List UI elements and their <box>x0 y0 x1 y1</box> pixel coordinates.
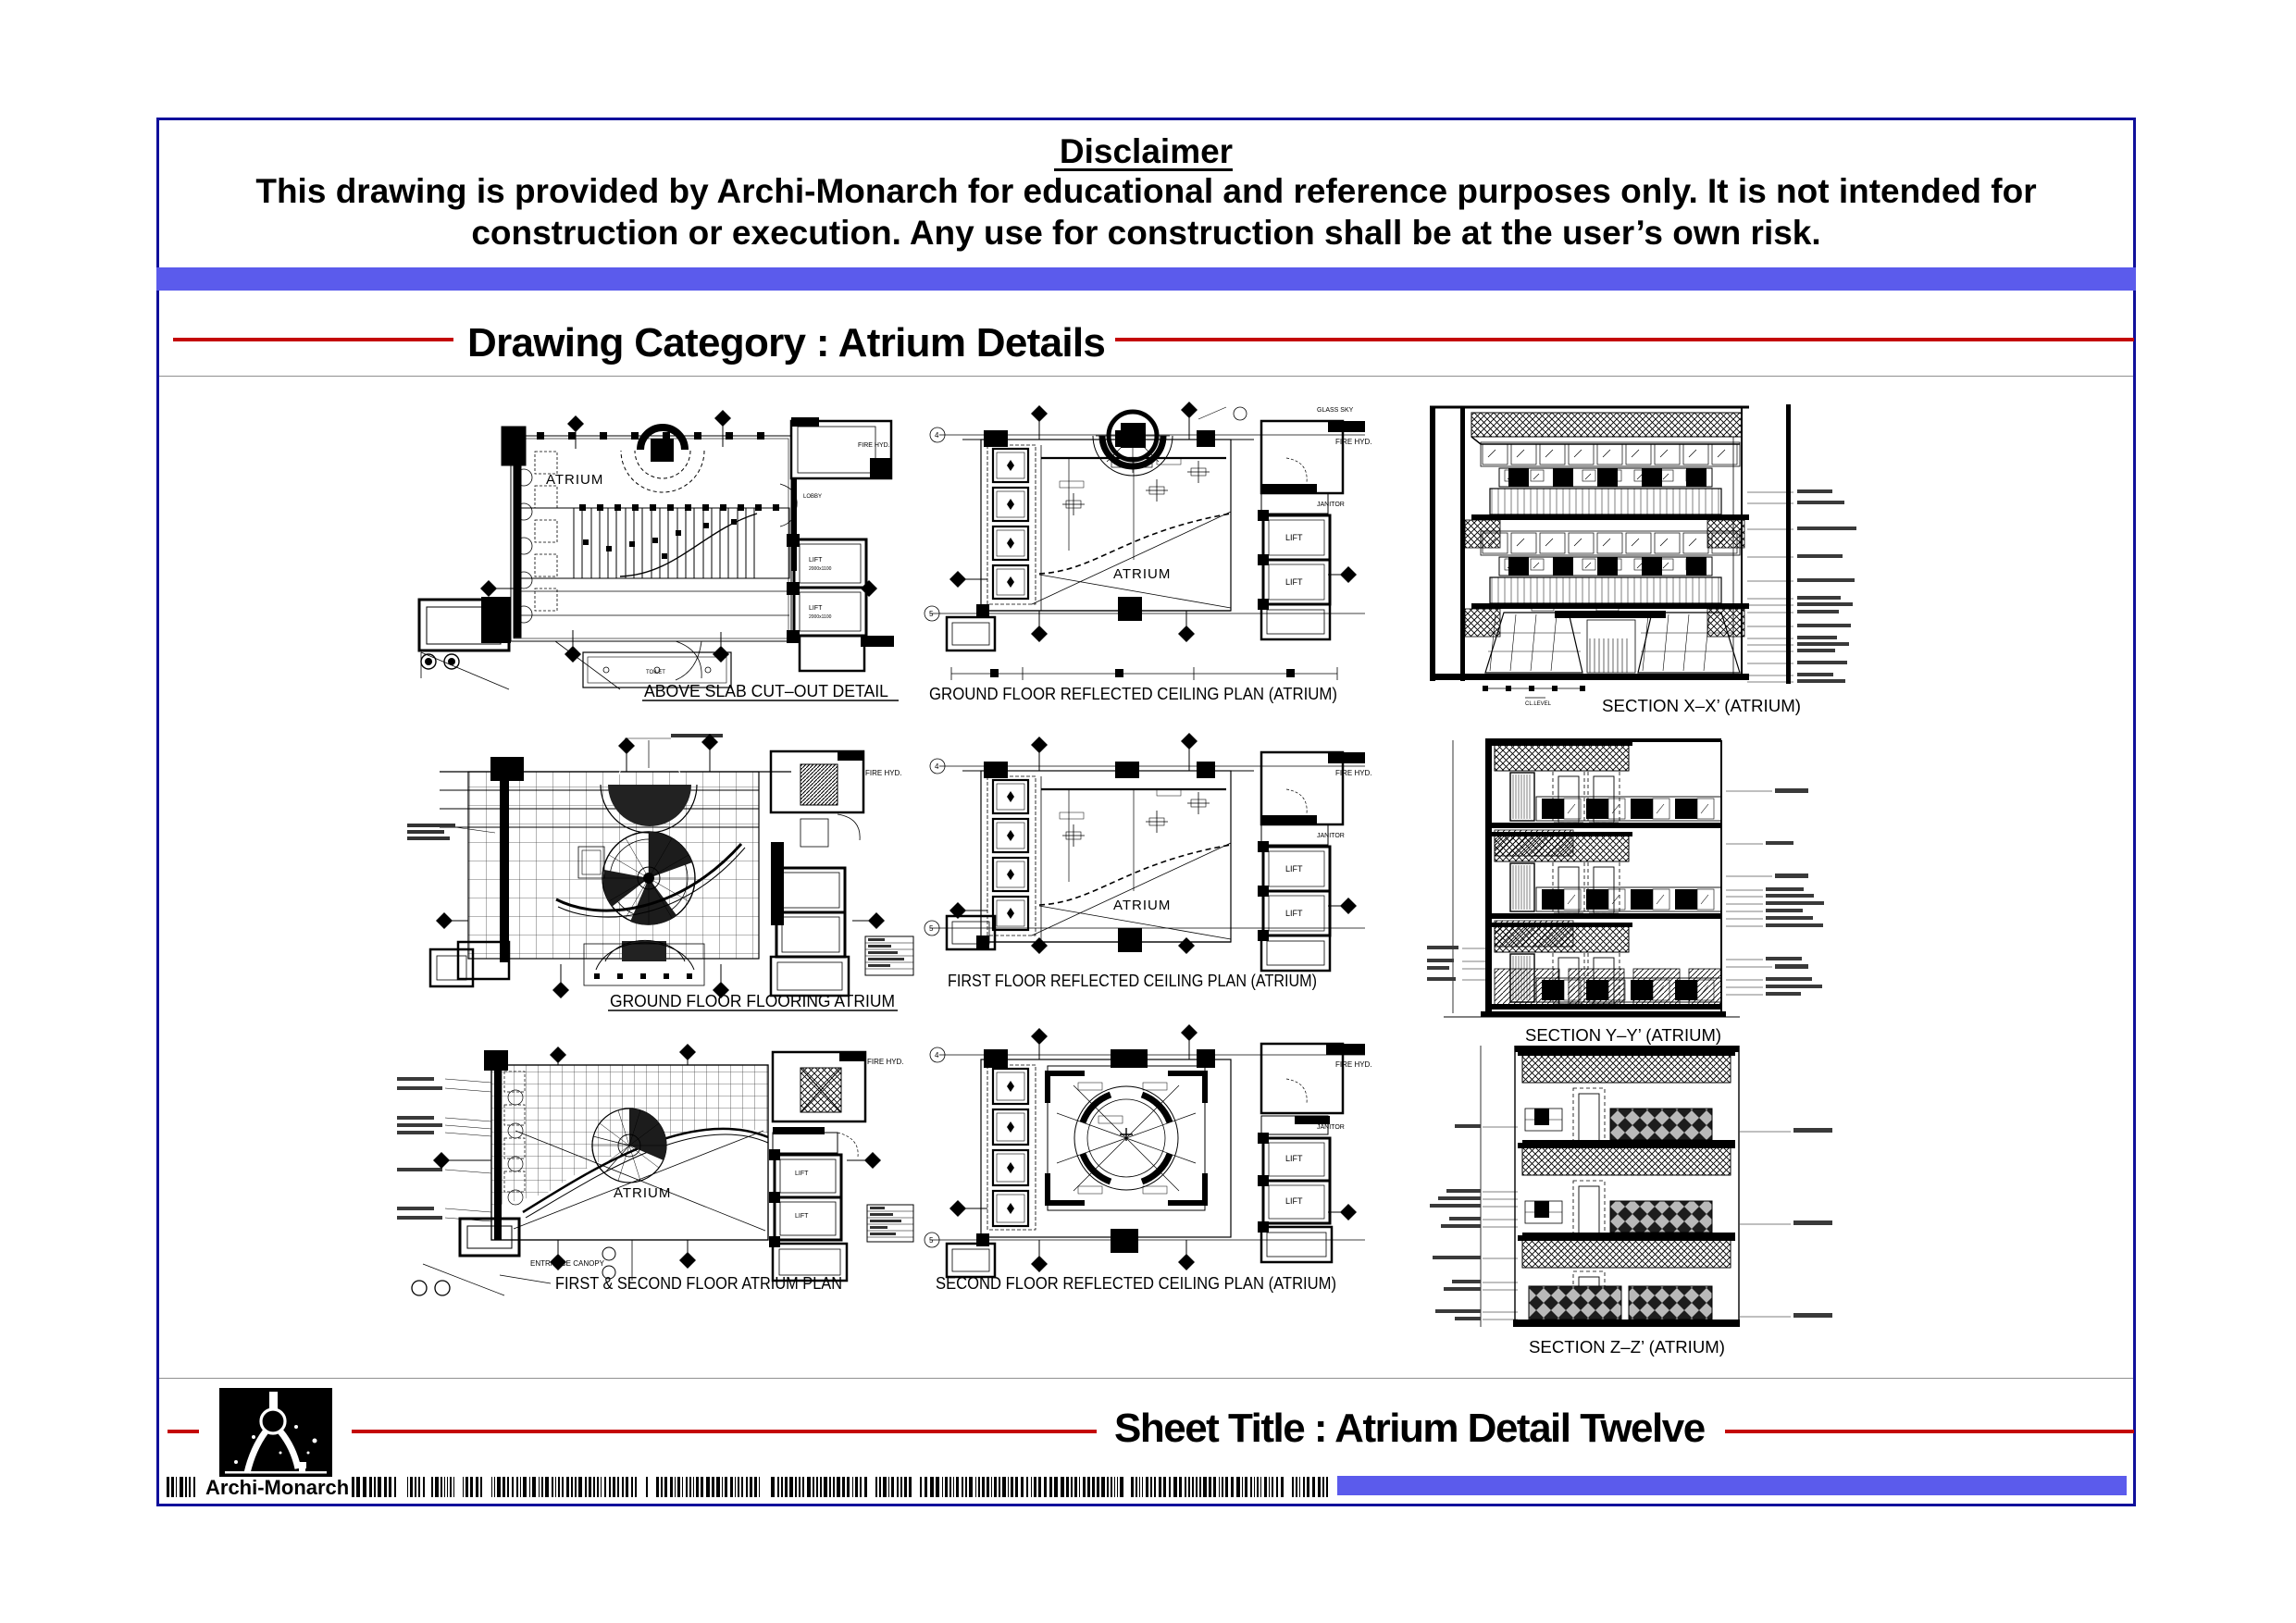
svg-text:SECOND FLOOR REFLECTED CEILING: SECOND FLOOR REFLECTED CEILING PLAN (ATR… <box>936 1273 1336 1293</box>
svg-text:LIFT: LIFT <box>795 1171 809 1177</box>
svg-text:LIFT: LIFT <box>809 605 823 612</box>
svg-text:FIRE HYD.: FIRE HYD. <box>1335 1060 1372 1069</box>
svg-text:4: 4 <box>935 762 939 771</box>
svg-text:2000x1100: 2000x1100 <box>809 566 832 572</box>
svg-text:JANITOR: JANITOR <box>1317 1124 1345 1131</box>
svg-text:4: 4 <box>935 1051 939 1059</box>
svg-text:FIRST & SECOND FLOOR ATRIUM PL: FIRST & SECOND FLOOR ATRIUM PLAN <box>555 1273 842 1293</box>
svg-text:GROUND FLOOR FLOORING ATRIUM: GROUND FLOOR FLOORING ATRIUM <box>610 991 895 1010</box>
svg-text:4: 4 <box>935 431 939 440</box>
svg-text:TOILET: TOILET <box>646 670 665 675</box>
svg-text:SECTION X–X’ (ATRIUM): SECTION X–X’ (ATRIUM) <box>1602 696 1801 715</box>
svg-text:LOBBY: LOBBY <box>803 494 822 500</box>
svg-text:LIFT: LIFT <box>809 557 823 564</box>
svg-text:LIFT: LIFT <box>795 1213 809 1220</box>
svg-text:SECTION Z–Z’ (ATRIUM): SECTION Z–Z’ (ATRIUM) <box>1529 1337 1725 1357</box>
svg-text:ABOVE SLAB CUT–OUT DETAIL: ABOVE SLAB CUT–OUT DETAIL <box>644 681 888 700</box>
svg-text:GROUND FLOOR REFLECTED CEILING: GROUND FLOOR REFLECTED CEILING PLAN (ATR… <box>929 684 1337 703</box>
svg-text:2000x1100: 2000x1100 <box>809 614 832 620</box>
svg-text:CL.LEVEL: CL.LEVEL <box>1525 701 1552 707</box>
svg-text:ATRIUM: ATRIUM <box>1113 898 1171 913</box>
svg-text:ENTRANCE CANOPY: ENTRANCE CANOPY <box>530 1259 605 1268</box>
svg-text:LIFT: LIFT <box>1285 1196 1303 1206</box>
svg-text:GLASS SKY: GLASS SKY <box>1317 407 1354 414</box>
svg-text:LIFT: LIFT <box>1285 577 1303 587</box>
svg-text:5: 5 <box>929 1236 934 1245</box>
svg-text:FIRST FLOOR REFLECTED CEILING: FIRST FLOOR REFLECTED CEILING PLAN (ATRI… <box>948 971 1317 990</box>
svg-text:ATRIUM: ATRIUM <box>1113 566 1171 582</box>
svg-text:SECTION Y–Y’ (ATRIUM): SECTION Y–Y’ (ATRIUM) <box>1525 1025 1721 1045</box>
svg-text:LIFT: LIFT <box>1285 864 1303 873</box>
svg-text:FIRE HYD.: FIRE HYD. <box>1335 769 1372 777</box>
svg-text:LIFT: LIFT <box>1285 533 1303 542</box>
svg-text:LIFT: LIFT <box>1285 909 1303 918</box>
svg-text:5: 5 <box>929 610 934 618</box>
svg-text:FIRE HYD.: FIRE HYD. <box>858 442 890 449</box>
svg-text:ATRIUM: ATRIUM <box>614 1185 671 1201</box>
svg-text:FIRE HYD.: FIRE HYD. <box>865 769 902 777</box>
svg-text:5: 5 <box>929 924 934 933</box>
svg-text:ATRIUM: ATRIUM <box>546 472 603 488</box>
svg-text:LIFT: LIFT <box>1285 1154 1303 1163</box>
svg-text:FIRE HYD.: FIRE HYD. <box>1335 438 1372 446</box>
svg-text:JANITOR: JANITOR <box>1317 502 1345 508</box>
svg-text:JANITOR: JANITOR <box>1317 833 1345 839</box>
svg-text:FIRE HYD.: FIRE HYD. <box>867 1058 904 1066</box>
